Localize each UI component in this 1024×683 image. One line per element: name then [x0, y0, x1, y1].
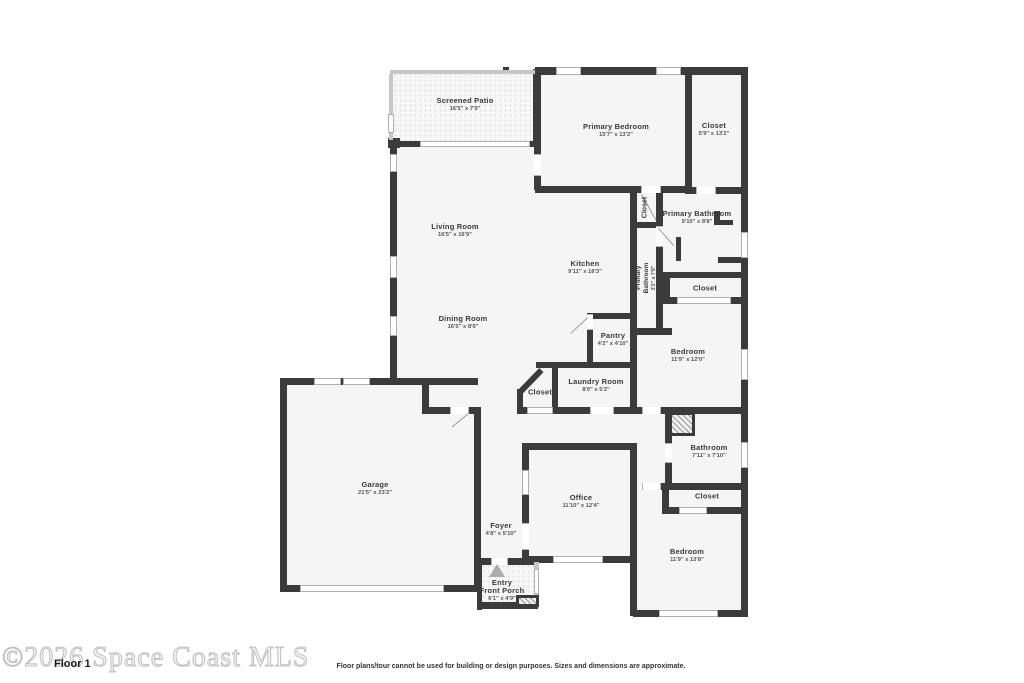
room-name: Primary Bathroom: [663, 209, 732, 218]
room-dims: 16'5" x 16'9": [431, 232, 479, 238]
room-name: Primary Bedroom: [583, 122, 649, 131]
wall-segment: [741, 67, 748, 616]
door-gap: [696, 187, 716, 194]
door-gap: [665, 443, 672, 463]
room-label-closet-top: Closet 5'9" x 13'2": [699, 121, 730, 137]
wall-segment: [522, 443, 637, 450]
room-name: Laundry Room: [568, 377, 623, 386]
room-dims: 9'11" x 18'3": [568, 269, 602, 275]
room-label-kitchen: Kitchen 9'11" x 18'3": [568, 259, 602, 275]
floor-number-label: Floor 1: [54, 658, 91, 670]
room-dims: 11'9" x 12'0": [671, 357, 705, 363]
wall-segment: [587, 330, 593, 364]
room-label-closet-vertical: Closet: [642, 197, 649, 223]
disclaimer-text: Floor plans/tour cannot be used for buil…: [337, 663, 686, 670]
window: [390, 256, 397, 278]
hatched-fixture: [669, 412, 695, 436]
wall-segment: [508, 558, 537, 565]
room-label-garage: Garage 21'5" x 23'2": [358, 480, 392, 496]
room-name: Bathroom: [643, 263, 650, 294]
room-dims: 4'8" x 5'10": [486, 531, 517, 537]
screen-wall: [390, 70, 535, 74]
room-label-laundry-room: Laundry Room 8'0" x 5'2": [568, 377, 623, 393]
room-label-bedroom-bottom: Bedroom 11'9" x 13'8": [670, 547, 704, 563]
wall-segment: [429, 407, 450, 414]
room-dims: 6'1" x 4'9": [480, 596, 525, 602]
door-gap: [587, 314, 593, 330]
room-name: Kitchen: [568, 259, 602, 268]
door-gap: [522, 523, 529, 550]
door-gap: [534, 154, 541, 176]
room-name: Living Room: [431, 222, 479, 231]
room-label-living-room: Living Room 16'5" x 16'9": [431, 222, 479, 238]
room-name: Closet: [695, 492, 719, 501]
room-dims: 21'5" x 23'2": [358, 490, 392, 496]
wall-segment: [614, 407, 632, 414]
wall-segment: [716, 187, 748, 194]
room-dims: 5'9" x 13'2": [699, 131, 730, 137]
window: [553, 556, 603, 563]
room-dims: 11'10" x 12'4": [563, 503, 600, 509]
wall-segment: [552, 407, 590, 414]
window: [343, 378, 370, 385]
wall-segment: [630, 443, 637, 616]
room-label-office: Office 11'10" x 12'4": [563, 493, 600, 509]
room-dims: 9'10" x 8'8": [663, 219, 732, 225]
room-dims: 7'11" x 7'10": [690, 453, 727, 459]
room-label-bedroom-middle: Bedroom 11'9" x 12'0": [671, 347, 705, 363]
wall-segment: [533, 69, 541, 146]
room-dims: 8'0" x 5'2": [568, 387, 623, 393]
room-name: Primary: [635, 266, 642, 290]
window: [679, 507, 707, 514]
room-label-closet-bottom: Closet: [695, 492, 719, 501]
room-label-pantry: Pantry 4'2" x 4'10": [598, 331, 629, 347]
wall-segment: [656, 247, 663, 333]
room-label-primary-bathroom-small: Primary Bathroom 3'2" x 7'8": [635, 263, 657, 294]
room-name: Foyer: [486, 521, 517, 530]
room-dims: 4'2" x 4'10": [598, 341, 629, 347]
window: [314, 378, 341, 385]
wall-segment: [535, 186, 641, 193]
wall-segment: [663, 272, 745, 278]
room-dims: 16'5" x 8'9": [439, 324, 488, 330]
wall-segment: [630, 328, 672, 335]
door-gap: [642, 407, 661, 414]
wall-segment: [685, 187, 696, 194]
window: [741, 232, 748, 258]
entry-arrow-icon: [489, 564, 505, 577]
room-label-closet-primary: Closet: [693, 284, 717, 293]
room-label-bathroom: Bathroom 7'11" x 7'10": [690, 443, 727, 459]
wall-segment: [469, 407, 481, 414]
room-label-entry-front-porch: Entry Front Porch 6'1" x 4'9": [480, 578, 525, 602]
window: [659, 610, 718, 617]
window: [522, 470, 529, 495]
window: [677, 297, 731, 304]
room-name: Bedroom: [670, 547, 704, 556]
room-name: Pantry: [598, 331, 629, 340]
room-name: Dining Room: [439, 314, 488, 323]
watermark: ©2026 Space Coast MLS: [2, 642, 309, 674]
window: [527, 407, 553, 414]
room-label-primary-bedroom: Primary Bedroom 15'7" x 13'2": [583, 122, 649, 138]
room-label-closet-hall: Closet: [528, 388, 552, 397]
room-label-primary-bathroom: Primary Bathroom 9'10" x 8'8": [663, 209, 732, 225]
room-name: Closet: [642, 197, 649, 218]
room-label-dining-room: Dining Room 16'5" x 8'9": [439, 314, 488, 330]
door-gap: [641, 186, 661, 193]
door-gap: [590, 407, 614, 414]
wall-segment: [685, 67, 692, 193]
window: [556, 67, 581, 75]
room-dims: 15'7" x 13'2": [583, 132, 649, 138]
wall-segment: [661, 186, 687, 193]
room-label-foyer: Foyer 4'8" x 5'10": [486, 521, 517, 537]
wall-segment: [661, 483, 748, 490]
room-name: Screened Patio: [437, 96, 494, 105]
door-gap: [642, 483, 661, 490]
room-name: Closet: [528, 388, 552, 397]
room-name: Garage: [358, 480, 392, 489]
window: [741, 442, 748, 468]
floor-plan: Screened Patio 16'5" x 7'9" Primary Bedr…: [0, 0, 1024, 683]
window: [390, 154, 397, 172]
room-name: Front Porch: [480, 586, 525, 595]
window: [390, 316, 397, 336]
wall-segment: [587, 313, 637, 319]
room-name: Bedroom: [671, 347, 705, 356]
door-gap: [450, 407, 469, 414]
room-label-screened-patio: Screened Patio 16'5" x 7'9": [437, 96, 494, 112]
window: [420, 141, 530, 147]
wall-segment: [280, 378, 287, 592]
room-dims: 3'2" x 7'8": [651, 266, 657, 291]
room-name: Closet: [699, 121, 730, 130]
room-dims: 11'9" x 13'8": [670, 557, 704, 563]
room-floor: [429, 385, 478, 408]
room-name: Office: [563, 493, 600, 502]
room-dims: 16'5" x 7'9": [437, 106, 494, 112]
window: [534, 569, 539, 594]
window: [300, 585, 444, 592]
window: [656, 67, 681, 75]
window: [741, 349, 748, 380]
wall-segment: [422, 385, 429, 414]
room-name: Bathroom: [690, 443, 727, 452]
window: [388, 114, 394, 133]
room-name: Closet: [693, 284, 717, 293]
wall-segment: [676, 237, 681, 261]
wall-segment: [280, 378, 478, 385]
